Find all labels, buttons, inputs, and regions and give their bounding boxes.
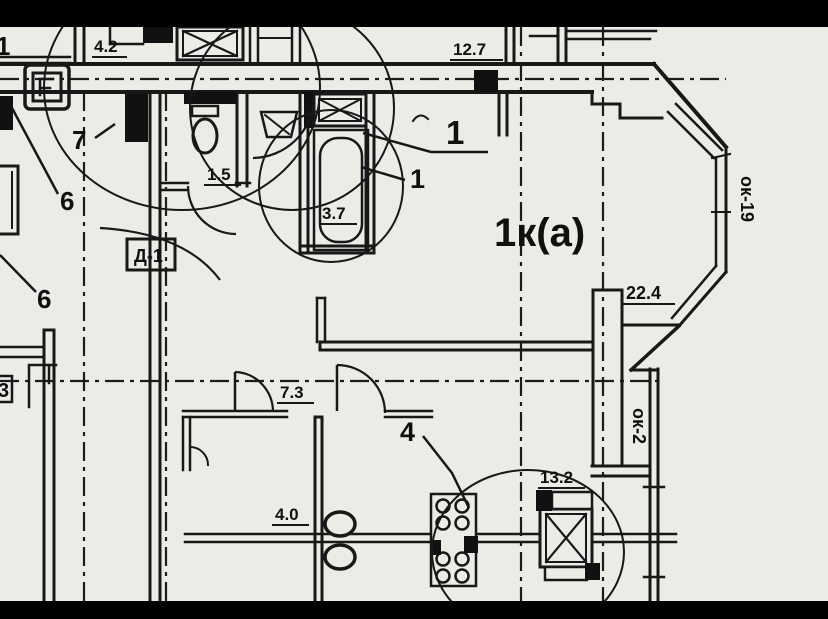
dim-wc: 1.5 <box>207 165 231 184</box>
callout-4: 4 <box>400 417 415 447</box>
wall-fill <box>143 27 173 43</box>
wall-fill <box>0 96 13 130</box>
callout-3: 3 <box>0 380 9 402</box>
balcony-window-unit <box>536 490 600 580</box>
floor-plan-scan: 4.2 12.7 1.5 3.7 22.4 7.3 4.0 13.2 1к(а)… <box>0 0 828 619</box>
window-label-side: ок-2 <box>629 408 649 444</box>
dim-left-room: 4.0 <box>275 505 299 524</box>
floorplan-svg: 4.2 12.7 1.5 3.7 22.4 7.3 4.0 13.2 1к(а)… <box>0 0 828 619</box>
dim-top-left: 4.2 <box>94 37 118 56</box>
dim-top-center: 12.7 <box>453 40 486 59</box>
dim-hall: 7.3 <box>280 383 304 402</box>
dim-bath: 3.7 <box>322 204 346 223</box>
letterbox-bottom <box>0 601 828 619</box>
panel-marker-icon <box>25 65 69 109</box>
door-marker-label: Д-1 <box>134 246 163 266</box>
wall-fill <box>474 70 498 92</box>
callout-1b: 1 <box>410 164 425 194</box>
room-label: 1к(а) <box>494 211 585 255</box>
dim-bay: 22.4 <box>626 283 661 303</box>
vent-grid-block <box>431 494 478 586</box>
wall-oval-symbol <box>325 512 355 536</box>
wall-oval-symbol <box>325 545 355 569</box>
structural-column <box>125 94 148 142</box>
window-label-bay: ок-19 <box>737 176 757 222</box>
dim-kitchen: 13.2 <box>540 468 573 487</box>
letterbox-top <box>0 0 828 27</box>
callout-1a: 1 <box>446 114 464 151</box>
callout-6b: 6 <box>37 284 51 314</box>
callout-edge-1: 1 <box>0 31 10 61</box>
callout-7: 7 <box>72 125 86 155</box>
callout-6a: 6 <box>60 186 74 216</box>
